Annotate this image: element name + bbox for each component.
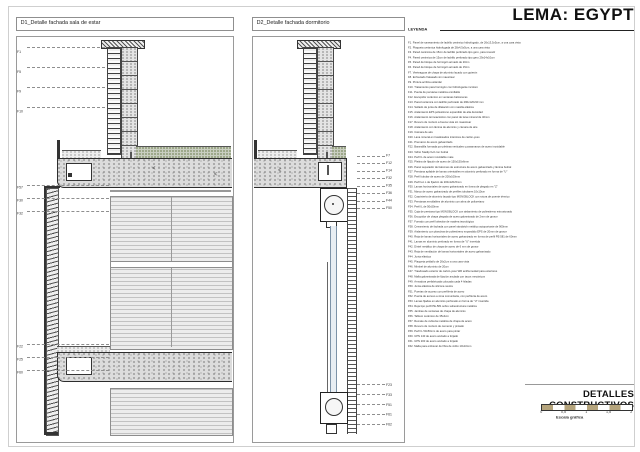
- legend-item-code: F46.: [408, 265, 413, 268]
- d2-slab-mark: <: [278, 168, 282, 174]
- legend-item-text: Lamas en aluminio perforado en forma de …: [414, 240, 480, 243]
- legend-item-code: F30.: [408, 185, 413, 188]
- leader-line: [27, 87, 105, 88]
- legend-item-code: F4.: [408, 56, 412, 59]
- legend-item-code: F6.: [408, 66, 412, 69]
- legend-item-code: F59.: [408, 330, 413, 333]
- d1-slab-mark-2: <: [214, 172, 218, 178]
- legend-item-text: Panel separador de balcones de estructur…: [414, 165, 511, 168]
- legend-item-code: F56.: [408, 315, 413, 318]
- leader-line: [357, 163, 385, 164]
- legend-item-text: Revoco de mortero a buena vista sin maes…: [414, 121, 471, 124]
- legend-item-text: Premarco de acero galvanizado: [414, 140, 452, 143]
- legend-item-text: Enfoscado fratasado sin maestrear: [413, 76, 455, 79]
- legend-item-text: Perfil tubular de acero de 200x100mm: [414, 175, 460, 178]
- legend-item-text: Malla para enfoscar de fibra de vidrio 1…: [414, 345, 471, 348]
- legend-item-text: Forrado con perfil alveolar de madera te…: [414, 220, 473, 223]
- d1-shutter-rail: [110, 190, 231, 192]
- d1-slab-mark-1: <: [152, 166, 156, 172]
- d1-exterior-louver-screen: [46, 188, 59, 436]
- legend-item-text: Junta elástica: [414, 255, 431, 258]
- leader-line: [27, 67, 105, 68]
- legend-item-text: Reja tipo perfil PE-581 sobre subestruct…: [414, 305, 476, 308]
- scale-tick-label: 0: [540, 410, 542, 414]
- d2-parapet-slat-stack: [303, 47, 317, 155]
- legend-item-text: Perfil L de acero inoxidable mate: [414, 155, 453, 158]
- drawing-sheet: LEMA: EGYPT D1_Detalle fachada sala de e…: [0, 0, 640, 452]
- legend-item-code: F22.: [408, 145, 413, 148]
- callout-label: F22: [17, 340, 23, 353]
- legend-item-text: Revoco de mortero de cemento y pintado: [414, 325, 464, 328]
- d2-window-glazing: [330, 226, 337, 392]
- legend-item-code: F37.: [408, 220, 413, 223]
- legend-item-code: F54.: [408, 305, 413, 308]
- leader-line: [357, 156, 385, 157]
- leader-line: [357, 186, 385, 187]
- legend-item-text: Escupidor cerámico en ventanas balconera…: [414, 96, 467, 99]
- leader-line: [27, 198, 109, 199]
- d2-callouts-bottom: F23F33F51F61F62: [386, 380, 392, 429]
- d1-callouts-bottom: F22F25F60: [17, 340, 23, 379]
- callout-label: F62: [386, 420, 392, 430]
- legend-item-text: Lana mineral en trasdosados interiores d…: [414, 135, 479, 138]
- leader-line: [357, 178, 385, 179]
- legend-item-text: Pared de bloque de hormigón armado de 20…: [413, 61, 470, 64]
- legend-item-code: F5.: [408, 61, 412, 64]
- callout-label: F5: [17, 62, 23, 82]
- legend-item-text: Junta elástica de silicona neutra: [414, 285, 452, 288]
- legend-item-code: F62.: [408, 345, 413, 348]
- legend-item-code: F7.: [408, 71, 412, 74]
- d1-callouts-top: F1F5F9F10: [17, 42, 23, 121]
- legend-item-text: UPN 200 de acero anclado a forjado: [414, 340, 458, 343]
- callout-label: F23: [386, 380, 392, 390]
- legend-item-text: Barandilla formada por pletinas vertical…: [414, 145, 505, 148]
- legend-title: LEYENDA: [408, 27, 427, 32]
- d1-flashing: [57, 140, 60, 158]
- d1-louver-edge-line: [44, 188, 46, 434]
- d1-shutter-lamas-upper: [110, 196, 233, 350]
- d1-edge-beam-box: [66, 163, 92, 181]
- d2-shutter-roller: [324, 195, 344, 215]
- d2-flashing: [254, 140, 257, 158]
- legend-item-code: F40.: [408, 235, 413, 238]
- legend-item-text: Lamas fijadas en aluminio perforado en f…: [414, 300, 488, 303]
- legend-item-text: Reja de lamas horizontales de acero galv…: [414, 235, 517, 238]
- callout-label: F14: [386, 167, 392, 174]
- legend-item-text: Pared de bloque de hormigón armado de 15…: [413, 66, 470, 69]
- legend-item-text: Caja de persiana tipo MONOBLOCK con aisl…: [414, 210, 512, 213]
- legend-item-code: F1.: [408, 41, 412, 44]
- d2-lower-shutter-roller: [325, 398, 343, 416]
- leader-line: [357, 171, 385, 172]
- scale-tick-label: 0,5: [561, 410, 566, 414]
- legend-item-code: F60.: [408, 335, 413, 338]
- legend-item-code: F29.: [408, 180, 413, 183]
- legend-item-text: Pletina de fijación de acero de 150x150x…: [414, 160, 469, 163]
- legend-item-code: F45.: [408, 260, 413, 263]
- legend-item-text: Cámara de aire: [414, 131, 433, 134]
- legend-item-text: Marco de acero galvanizado de perfiles t…: [414, 190, 485, 193]
- legend-item-text: Persianas enrollables de aluminio con al…: [414, 200, 484, 203]
- leader-line: [357, 193, 385, 194]
- callout-label: F10: [17, 101, 23, 121]
- legend-item-code: F53.: [408, 300, 413, 303]
- leader-line: [357, 424, 385, 425]
- scale-tick-label: 1: [585, 410, 587, 414]
- legend-item: F62.Malla para enfoscar de fibra de vidr…: [408, 344, 525, 349]
- leader-line: [27, 370, 109, 371]
- callout-label: F36: [386, 189, 392, 196]
- legend-item-code: F3.: [408, 51, 412, 54]
- legend-item-code: F20.: [408, 135, 413, 138]
- leader-line: [357, 201, 385, 202]
- legend-item-code: F8.: [408, 76, 412, 79]
- legend-item-code: F14.: [408, 106, 413, 109]
- leader-line: [357, 384, 385, 385]
- d2-beam-pin: [327, 165, 329, 175]
- legend-item-code: F48.: [408, 275, 413, 278]
- legend-item-code: F41.: [408, 240, 413, 243]
- callout-label: F7: [386, 152, 392, 159]
- legend-item-code: F15.: [408, 111, 413, 114]
- callout-label: F12: [386, 159, 392, 166]
- legend-item-text: Perfil L de 50x50mm: [414, 205, 439, 208]
- callout-label: F61: [386, 410, 392, 420]
- legend-item-text: Carpintería de aluminio lacado tipo MONO…: [414, 195, 509, 198]
- legend-item-code: F44.: [408, 255, 413, 258]
- callout-label: F32: [17, 207, 23, 220]
- legend-list: F1.Panel de saneamiento de ladrillo cerá…: [408, 40, 525, 349]
- d1-shutter-lamas-lower: [110, 388, 233, 436]
- d2-label: D2_Detalle fachada dormitorio: [253, 18, 344, 25]
- legend-item-code: F11.: [408, 91, 413, 94]
- legend-item-text: Dintel metálico de chapa de acero de 6 m…: [414, 245, 478, 248]
- legend-item-text: Aislamiento con lámina de aluminio y cám…: [414, 126, 477, 129]
- legend-item-code: F39.: [408, 230, 413, 233]
- legend-item-code: F49.: [408, 280, 413, 283]
- legend-item-code: F27.: [408, 170, 413, 173]
- leader-line: [27, 47, 105, 48]
- legend-item-text: Mimbel de aluminio de 20cm: [414, 265, 448, 268]
- d1-label: D1_Detalle fachada sala de estar: [17, 18, 147, 25]
- legend-item-code: F34.: [408, 205, 413, 208]
- leader-line: [27, 357, 109, 358]
- legend-item-code: F12.: [408, 96, 413, 99]
- legend-item-text: Panel de saneamiento de ladrillo cerámic…: [413, 41, 521, 44]
- callout-label: F9: [17, 82, 23, 102]
- legend-item-code: F17.: [408, 121, 413, 124]
- d1-label-box: D1_Detalle fachada sala de estar: [16, 17, 234, 31]
- callout-label: F60: [17, 366, 23, 379]
- legend-item-text: Persiana apilable de lamas orientables e…: [414, 170, 507, 173]
- d1-lower-edge-beam-box: [66, 357, 92, 375]
- legend-item-text: Perfil en L de fijación de 200x120x5mm: [414, 180, 461, 183]
- legend-item-text: Pared cerámica de 15cm de ladrillo perfo…: [413, 51, 495, 54]
- legend-item-code: F21.: [408, 140, 413, 143]
- legend-item-code: F32.: [408, 195, 413, 198]
- scale-caption: Escala gráfica: [556, 415, 592, 420]
- d2-mullion-line: [327, 262, 328, 392]
- legend-item-code: F33.: [408, 200, 413, 203]
- callout-label: F1: [17, 42, 23, 62]
- legend-item-text: Remate de cubierta metálica de chapa de …: [414, 320, 471, 323]
- d2-parapet-block-stack: [317, 47, 334, 161]
- leader-line: [357, 394, 385, 395]
- legend-item-text: Cerramiento de fachada con panel sándwic…: [414, 225, 508, 228]
- legend-item-code: F35.: [408, 210, 413, 213]
- legend-item-text: Reja de ventilación de lamas horizontale…: [414, 250, 490, 253]
- legend-item-text: Plaqueta cerámica hidrofugada de 28x4,5x…: [413, 46, 490, 49]
- legend-item-text: Sellado de junta de dilatación con masil…: [414, 106, 473, 109]
- leader-line: [357, 414, 385, 415]
- scale-tick-label: 2: [630, 410, 632, 414]
- legend-item-code: F25.: [408, 160, 413, 163]
- callout-label: F51: [386, 400, 392, 410]
- legend-item-code: F42.: [408, 245, 413, 248]
- legend-item-code: F36.: [408, 215, 413, 218]
- legend-item-code: F43.: [408, 250, 413, 253]
- legend-item-text: Puerta de acceso a zona comunitaria, con…: [414, 295, 487, 298]
- leader-line: [27, 344, 109, 345]
- legend-item-code: F24.: [408, 155, 413, 158]
- legend-item-code: F52.: [408, 295, 413, 298]
- d2-callouts-top: F7F12F14F32F35F36F44F50: [386, 152, 392, 212]
- callout-label: F30: [17, 194, 23, 207]
- page-title: LEMA: EGYPT: [380, 5, 634, 25]
- legend-item-code: F55.: [408, 310, 413, 313]
- legend-item-text: Aislamiento termoacústico con panel de l…: [414, 116, 489, 119]
- callout-label: F33: [386, 390, 392, 400]
- legend-item-text: Escupidor de chapa plegada de acero galv…: [414, 215, 497, 218]
- legend-item-code: F13.: [408, 101, 413, 104]
- d1-parapet-slat-stack: [107, 47, 121, 155]
- legend-item-text: Aislamiento EPS poliestireno expandido d…: [414, 111, 482, 114]
- legend-item-code: F16.: [408, 116, 413, 119]
- legend-item-text: Jambas de ventanas de chapa de aluminio: [414, 310, 465, 313]
- title-underline: [440, 30, 634, 31]
- d1-beam-mark: [68, 173, 72, 177]
- scale-tick-label: 1,5: [606, 410, 611, 414]
- d1-louver-foot: [44, 432, 58, 435]
- legend-item-text: Lamas horizontales de acero galvanizado …: [414, 185, 497, 188]
- callout-label: F57: [17, 181, 23, 194]
- legend-item-code: F18.: [408, 126, 413, 129]
- callout-label: F35: [386, 182, 392, 189]
- legend-item-text: Trasdosado exterior de cartón-yeso WR an…: [414, 270, 497, 273]
- d1-callouts-mid: F57F30F32: [17, 181, 23, 220]
- legend-item-text: Malla galvanizada de fijación anclada co…: [414, 275, 485, 278]
- legend-item-code: F10.: [408, 86, 413, 89]
- legend-item-code: F2.: [408, 46, 412, 49]
- legend-item-code: F9.: [408, 81, 412, 84]
- d1-parapet-block-stack: [121, 47, 138, 161]
- legend-item-text: Vidrio Stadip 6+6 con butiral: [414, 150, 448, 153]
- leader-line: [27, 107, 105, 108]
- legend-item-code: F57.: [408, 320, 413, 323]
- d2-edge-beam-box: [318, 162, 342, 181]
- legend-item-code: F51.: [408, 290, 413, 293]
- d2-brick-hatch-wall: [347, 188, 357, 434]
- legend-item-text: Armadura prefabricada colocada cada 4 hi…: [414, 280, 471, 283]
- d2-roller-axis: [332, 203, 334, 205]
- legend-item-code: F28.: [408, 175, 413, 178]
- d2-label-box: D2_Detalle fachada dormitorio: [252, 17, 405, 31]
- legend-item-code: F61.: [408, 340, 413, 343]
- legend-item-text: Pintura acrílica estándar: [413, 81, 442, 84]
- callout-label: F44: [386, 197, 392, 204]
- legend-item-text: Puertas de acceso con perfilería de acer…: [414, 290, 464, 293]
- legend-item-code: F26.: [408, 165, 413, 168]
- titleblock-rule: [525, 384, 634, 385]
- legend-item-text: Tratamiento para hormigón con hidrofugan…: [414, 86, 478, 89]
- legend-item-text: Aislamiento con planchas de poliestireno…: [414, 230, 506, 233]
- legend-item-code: F50.: [408, 285, 413, 288]
- legend-item-code: F19.: [408, 131, 413, 134]
- legend-item-text: Plaqueta peldaño de 26x2cm a una cara vi…: [414, 260, 469, 263]
- legend-item-text: Puerta de persiana metálica enrollable: [414, 91, 460, 94]
- legend-item-text: Vierteaguas de chapa de aluminio lacado …: [413, 71, 478, 74]
- legend-item-text: Tablero cerámico de 35x4cm: [414, 315, 449, 318]
- leader-line: [357, 404, 385, 405]
- legend-item-code: F38.: [408, 225, 413, 228]
- legend-item-code: F23.: [408, 150, 413, 153]
- d1-shutter-midline: [171, 197, 172, 347]
- leader-line: [357, 208, 385, 209]
- leader-line: [27, 211, 109, 212]
- callout-label: F32: [386, 174, 392, 181]
- legend-item-code: F47.: [408, 270, 413, 273]
- legend-item-text: Pared cerámica de 15cm de ladrillo perfo…: [413, 56, 495, 59]
- callout-label: F50: [386, 204, 392, 211]
- callout-label: F25: [17, 353, 23, 366]
- d1-transom-band: [111, 261, 232, 268]
- legend-item-text: UPN 140 de acero anclado a forjado: [414, 335, 458, 338]
- d2-sill-detail: [326, 424, 337, 434]
- legend-item-code: F31.: [408, 190, 413, 193]
- legend-item-text: Pared cerámica con ladrillo perforado de…: [414, 101, 483, 104]
- legend-item-code: F58.: [408, 325, 413, 328]
- legend-item-text: Perfil L 50x50mm de acero para pintar: [414, 330, 460, 333]
- leader-line: [27, 185, 109, 186]
